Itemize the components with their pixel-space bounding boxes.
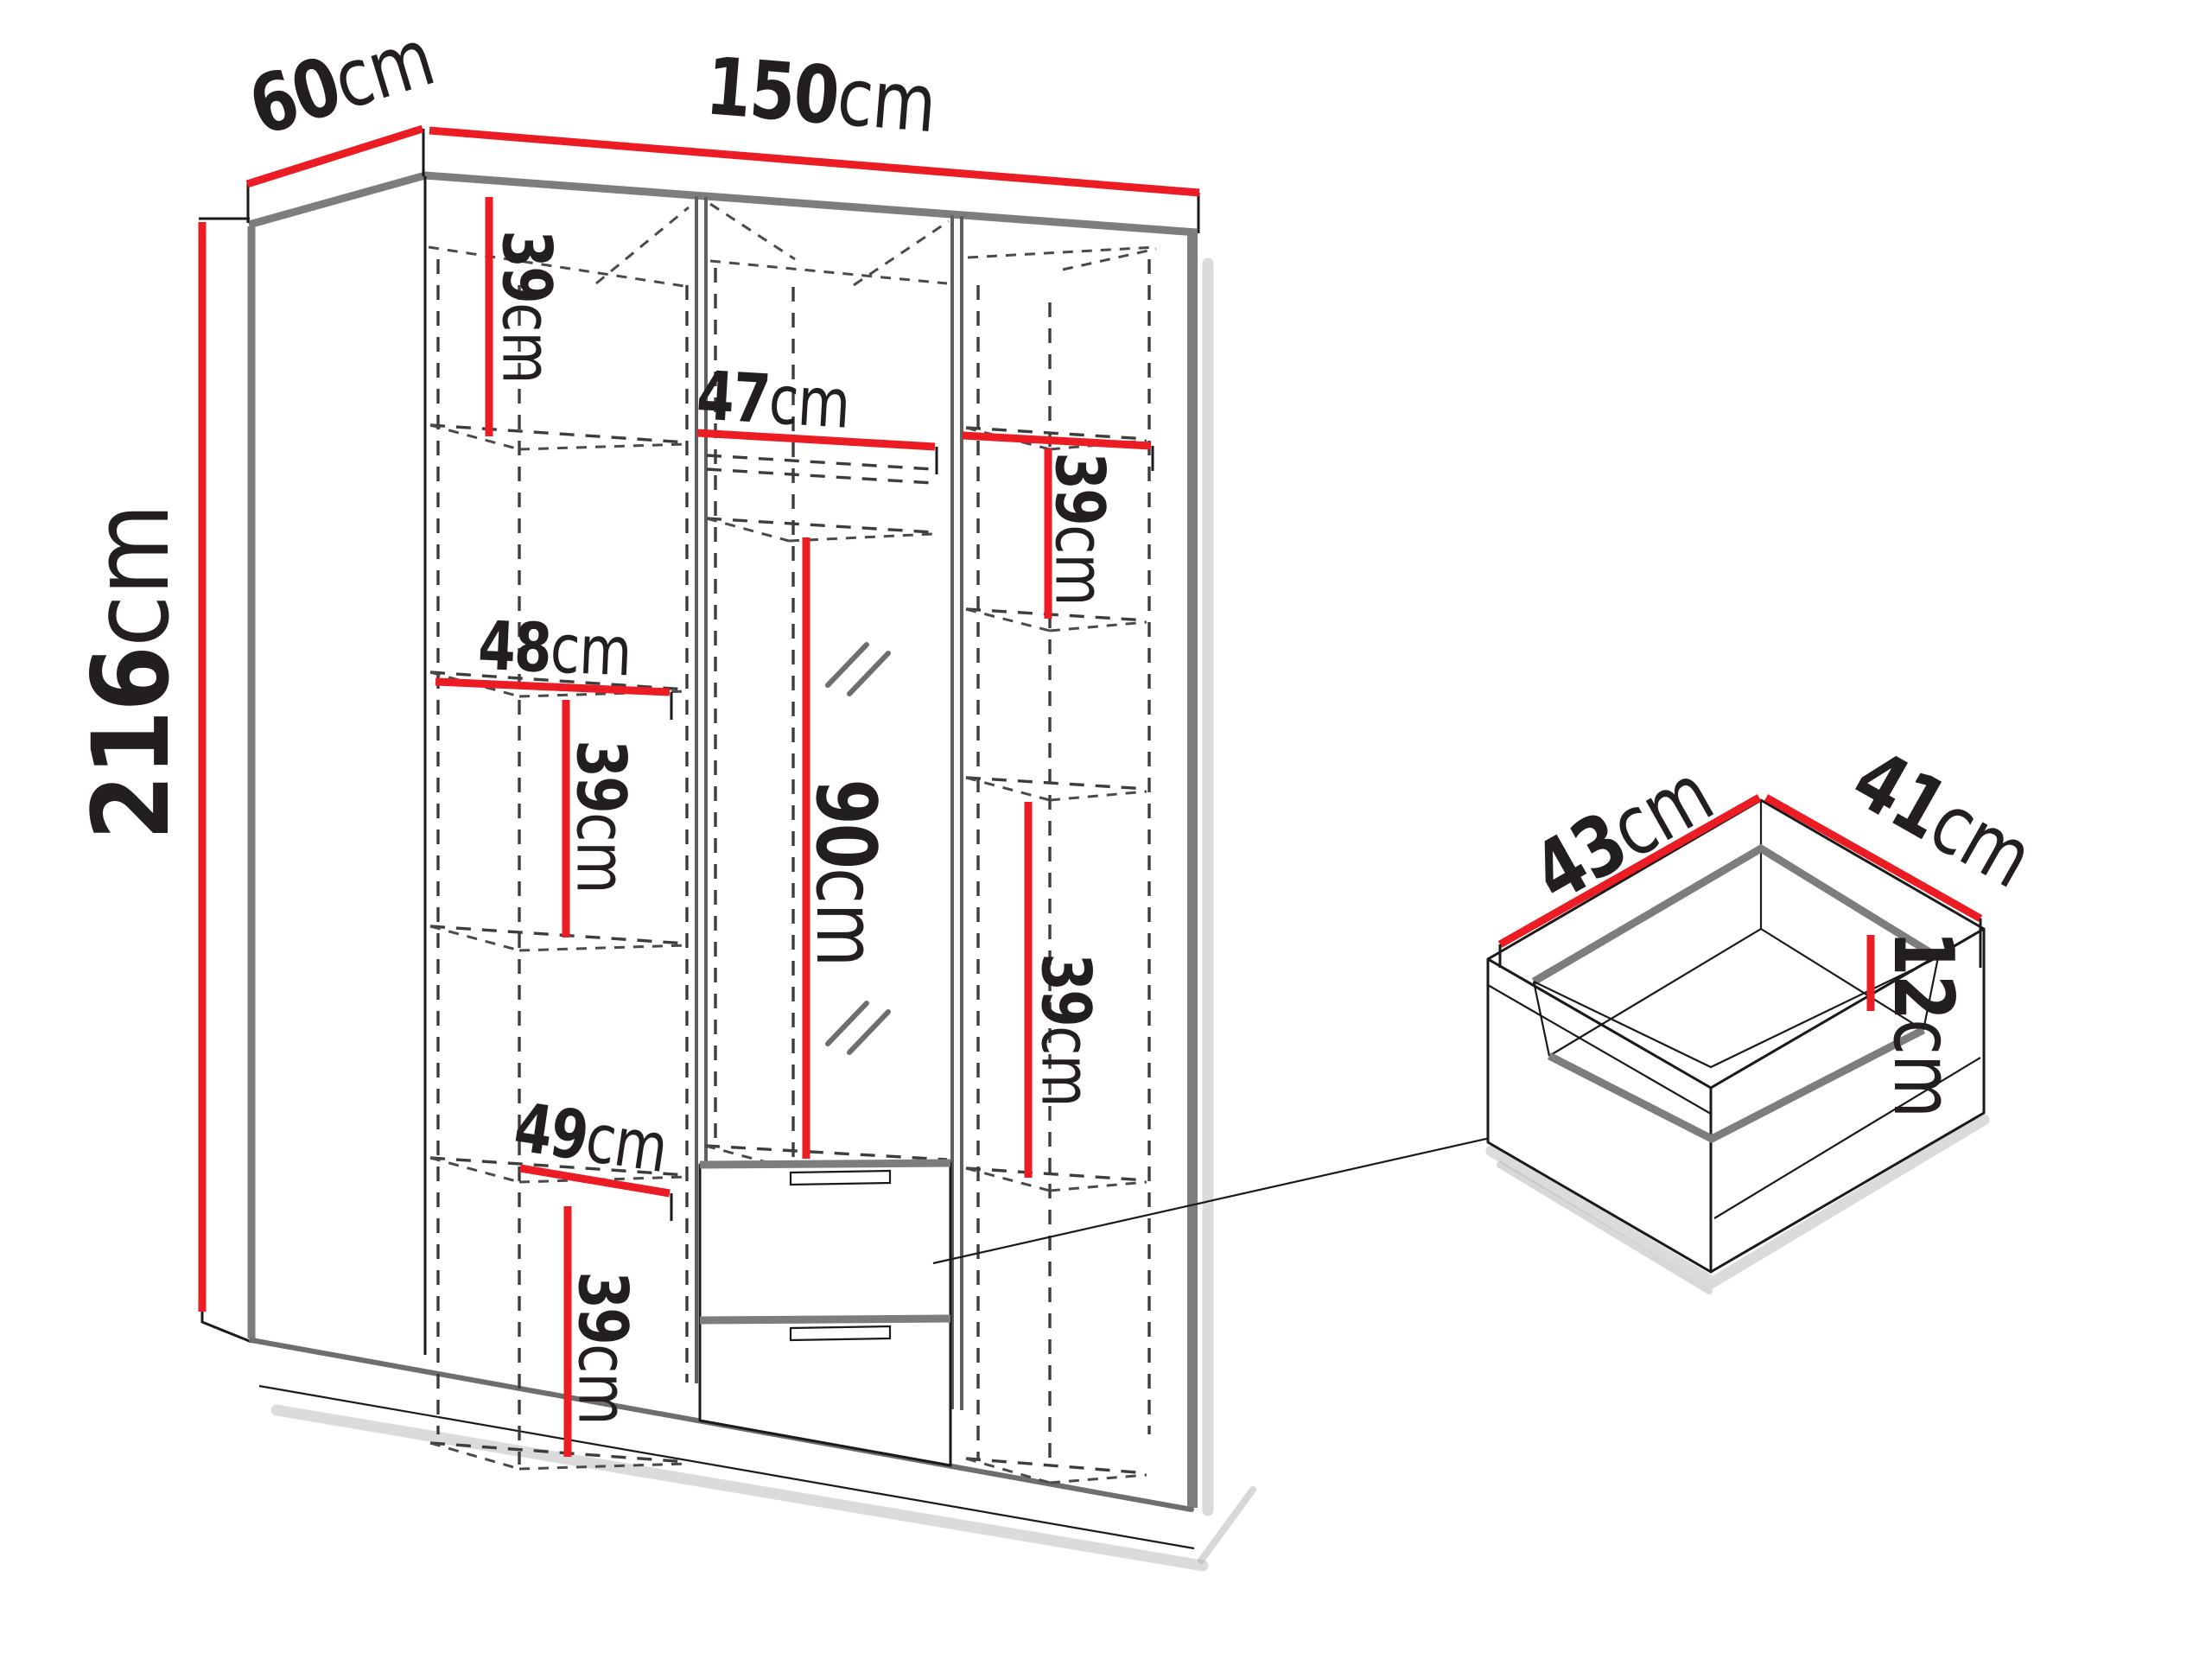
side-panel-bottom-edge bbox=[202, 1310, 251, 1342]
label-unit: cm bbox=[563, 1344, 643, 1424]
label-left-48: 48cm bbox=[477, 605, 633, 690]
label-unit: cm bbox=[562, 812, 641, 893]
left-column-shelf-back-dashes bbox=[430, 425, 687, 1469]
label-width-150: 150cm bbox=[702, 40, 939, 150]
label-value: 12 bbox=[1875, 931, 1970, 1020]
label-unit: cm bbox=[834, 50, 939, 150]
label-unit: cm bbox=[1875, 1019, 1970, 1117]
label-mid-47: 47cm bbox=[695, 355, 852, 443]
label-unit: cm bbox=[798, 868, 893, 966]
middle-column-top-dashes bbox=[710, 204, 949, 285]
label-left-bottom-39: 39cm bbox=[563, 1271, 643, 1424]
label-value: 47 bbox=[695, 355, 772, 438]
label-mid-90: 90cm bbox=[798, 779, 893, 967]
furniture-dimension-diagram: 60cm 150cm 216cm 39cm 47cm 39cm 48cm 39c… bbox=[0, 0, 2212, 1659]
label-unit: cm bbox=[766, 359, 852, 443]
label-value: 150 bbox=[702, 40, 842, 143]
label-unit: cm bbox=[549, 608, 632, 691]
wardrobe-drawers bbox=[700, 1163, 950, 1465]
label-left-top-39: 39cm bbox=[487, 230, 567, 383]
label-value: 90 bbox=[798, 779, 893, 868]
mirror-hatch-lower bbox=[828, 1003, 888, 1052]
label-right-low-39: 39cm bbox=[1027, 953, 1106, 1106]
wardrobe-drawing: 60cm 150cm 216cm 39cm 47cm 39cm 48cm 39c… bbox=[70, 10, 1253, 1566]
label-height-216: 216cm bbox=[70, 504, 193, 840]
middle-column-rod-dashes bbox=[707, 455, 933, 483]
drawer-detail-drawing: 43cm 41cm 12cm bbox=[1488, 732, 2048, 1291]
label-value: 49 bbox=[510, 1087, 593, 1176]
drawer-front-2 bbox=[700, 1319, 950, 1465]
label-unit: cm bbox=[70, 504, 193, 647]
drawer-front-1 bbox=[700, 1163, 950, 1320]
label-value: 39 bbox=[562, 740, 641, 812]
label-drawer-12: 12cm bbox=[1875, 931, 1970, 1118]
mirror-hatch-upper bbox=[828, 645, 888, 694]
drawer-front-2-top-edge bbox=[700, 1319, 950, 1320]
label-value: 39 bbox=[487, 230, 567, 302]
label-unit: cm bbox=[1027, 1026, 1106, 1106]
right-column-top-dashes bbox=[968, 247, 1156, 270]
label-value: 216 bbox=[70, 647, 193, 841]
label-unit: cm bbox=[487, 302, 567, 383]
label-value: 39 bbox=[563, 1271, 643, 1344]
left-column-shelf-front-dashes bbox=[430, 425, 687, 1462]
label-unit: cm bbox=[581, 1097, 672, 1187]
label-value: 39 bbox=[1040, 452, 1120, 524]
label-unit: cm bbox=[1040, 524, 1120, 605]
label-value: 39 bbox=[1027, 953, 1106, 1026]
drawer-front-1-top-edge bbox=[700, 1163, 950, 1165]
label-right-top-39: 39cm bbox=[1040, 452, 1120, 605]
label-left-mid-39: 39cm bbox=[562, 740, 641, 893]
label-value: 48 bbox=[477, 605, 553, 687]
